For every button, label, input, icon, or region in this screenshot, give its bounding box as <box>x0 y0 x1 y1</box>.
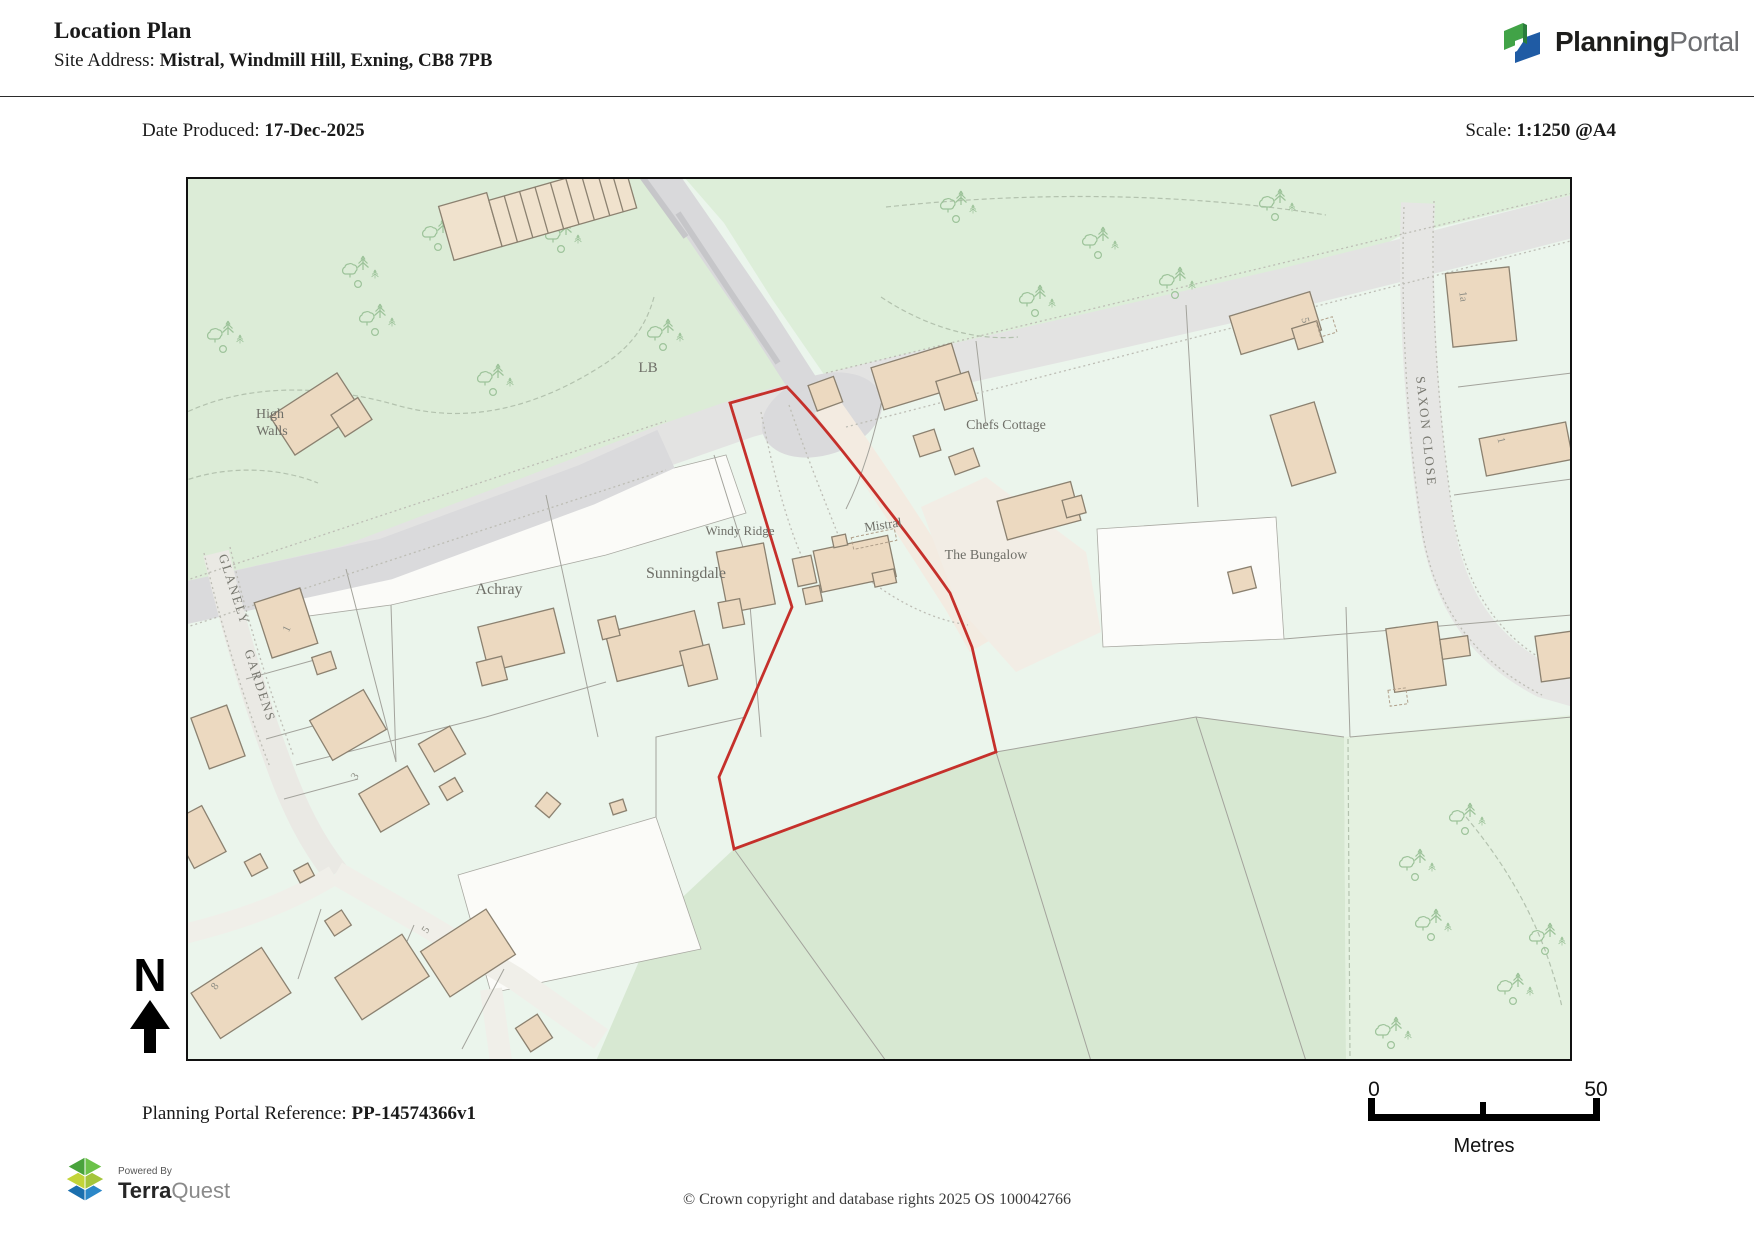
map-scale-label: Scale: <box>1465 120 1516 141</box>
site-address: Site Address: Mistral, Windmill Hill, Ex… <box>54 50 492 72</box>
building-plot1a <box>1445 267 1516 347</box>
map-label-lb: LB <box>638 360 657 376</box>
building-outbuilding <box>803 585 823 604</box>
scale-bar: 0 50 Metres <box>1358 1074 1618 1169</box>
north-arrow: N <box>120 952 180 1059</box>
map-label-high-walls-2: Walls <box>256 424 288 439</box>
page-title: Location Plan <box>54 18 191 44</box>
map-label-sunningdale: Sunningdale <box>646 565 726 582</box>
scale-bar-start: 0 <box>1368 1078 1380 1101</box>
date-produced-label: Date Produced: <box>142 120 264 141</box>
map-label-windy-ridge: Windy Ridge <box>705 523 774 538</box>
map-label-high-walls-1: High <box>256 407 284 422</box>
planning-portal-logo: PlanningPortal <box>1498 18 1739 66</box>
reference-value: PP-14574366v1 <box>351 1103 476 1124</box>
map-scale-value: 1:1250 @A4 <box>1517 120 1616 141</box>
map-canvas: LB High Walls Chefs Cottage Mistral The … <box>186 177 1572 1061</box>
scale-bar-end: 50 <box>1584 1078 1607 1101</box>
scale-bar-unit: Metres <box>1453 1135 1514 1157</box>
site-address-label: Site Address: <box>54 50 160 71</box>
map-label-achray: Achray <box>475 581 522 598</box>
map-scale: Scale: 1:1250 @A4 <box>1465 120 1616 142</box>
planning-portal-icon <box>1498 18 1546 66</box>
header-divider <box>0 96 1754 97</box>
brand-bold: Planning <box>1555 26 1669 57</box>
planning-portal-reference: Planning Portal Reference: PP-14574366v1 <box>142 1103 476 1125</box>
map-label-chefs-cottage: Chefs Cottage <box>966 418 1046 433</box>
site-address-value: Mistral, Windmill Hill, Exning, CB8 7PB <box>160 50 493 71</box>
date-produced-value: 17-Dec-2025 <box>264 120 364 141</box>
north-label: N <box>120 952 180 998</box>
building-outbuilding <box>1228 566 1257 593</box>
powered-by-label: Powered By <box>118 1167 230 1177</box>
map-label-plot-1a: 1a <box>1456 291 1469 303</box>
north-arrow-icon <box>124 998 176 1054</box>
copyright-notice: © Crown copyright and database rights 20… <box>0 1191 1754 1209</box>
brand-light: Portal <box>1669 26 1739 57</box>
white-parcel-east <box>1097 517 1284 647</box>
map-label-the-bungalow: The Bungalow <box>945 548 1029 563</box>
building-east-edge <box>1535 630 1572 682</box>
reference-label: Planning Portal Reference: <box>142 1103 351 1124</box>
date-produced: Date Produced: 17-Dec-2025 <box>142 120 365 142</box>
planning-portal-wordmark: PlanningPortal <box>1555 26 1739 58</box>
location-plan-map: LB High Walls Chefs Cottage Mistral The … <box>186 177 1572 1061</box>
green-area-southeast <box>1344 715 1572 1061</box>
